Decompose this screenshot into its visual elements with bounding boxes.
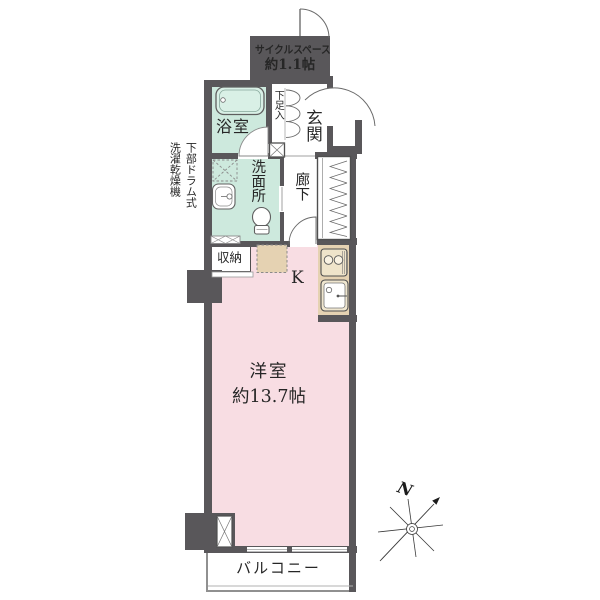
washer-note-line1: 下部ドラム式 <box>184 142 196 208</box>
cycle-space-size: 約1.1帖 <box>252 58 328 73</box>
shoe-box-label: 下足入 <box>272 90 283 120</box>
wall-entrance-right-upper <box>327 76 333 88</box>
washroom-floor <box>212 159 280 243</box>
closet <box>318 157 351 240</box>
kitchen-label: K <box>291 269 304 288</box>
kitchen-counter <box>318 245 350 315</box>
washroom-label: 洗面所 <box>249 159 265 203</box>
entrance-label: 玄関 <box>303 109 321 142</box>
cycle-space-label: サイクルスペース <box>255 45 325 57</box>
western-room-label: 洋室 <box>192 363 346 383</box>
western-room-size: 約13.7帖 <box>192 388 346 408</box>
compass: N <box>378 477 443 561</box>
wall-washroom-bottom <box>204 241 290 247</box>
pillar-bottom-left <box>185 513 235 550</box>
wall-kitchen-stub <box>318 315 357 322</box>
wall-right <box>349 152 356 592</box>
wall-left <box>204 80 212 553</box>
floor-plan: N サイクルスペース 約1.1帖 浴室 下足入 玄関 廊下 洗面所 下部ドラム式… <box>0 0 600 600</box>
pillar-middle-left <box>187 270 222 303</box>
compass-arrow-icon <box>432 497 440 505</box>
wall-bathroom-bottom-left <box>204 153 238 159</box>
balcony-label: バルコニー <box>206 560 351 577</box>
compass-north-label: N <box>394 477 416 501</box>
storage-label: 収納 <box>208 251 251 265</box>
wall-washroom-hallway <box>280 159 284 243</box>
bathroom-label: 浴室 <box>211 118 255 136</box>
hallway-label: 廊下 <box>293 172 309 201</box>
wall-bathroom-top <box>204 80 272 87</box>
cycle-space-door-arc <box>300 9 329 38</box>
washer-note-line2: 洗濯乾燥機 <box>168 142 180 197</box>
